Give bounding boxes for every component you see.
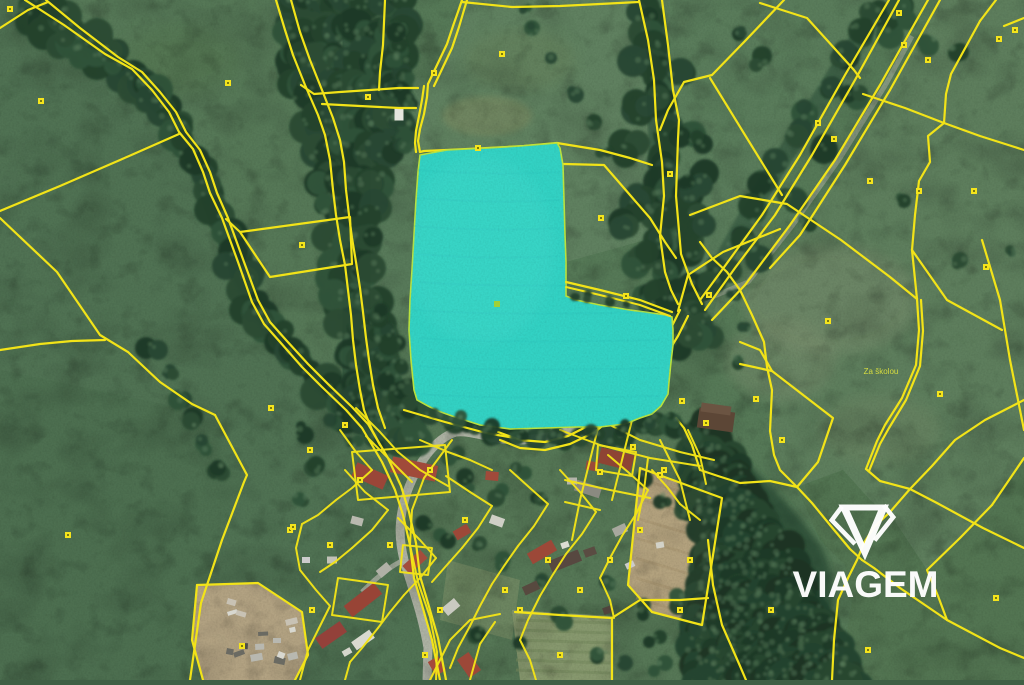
svg-text:Za školou: Za školou (864, 367, 899, 376)
svg-text:VIAGEM: VIAGEM (793, 564, 939, 605)
